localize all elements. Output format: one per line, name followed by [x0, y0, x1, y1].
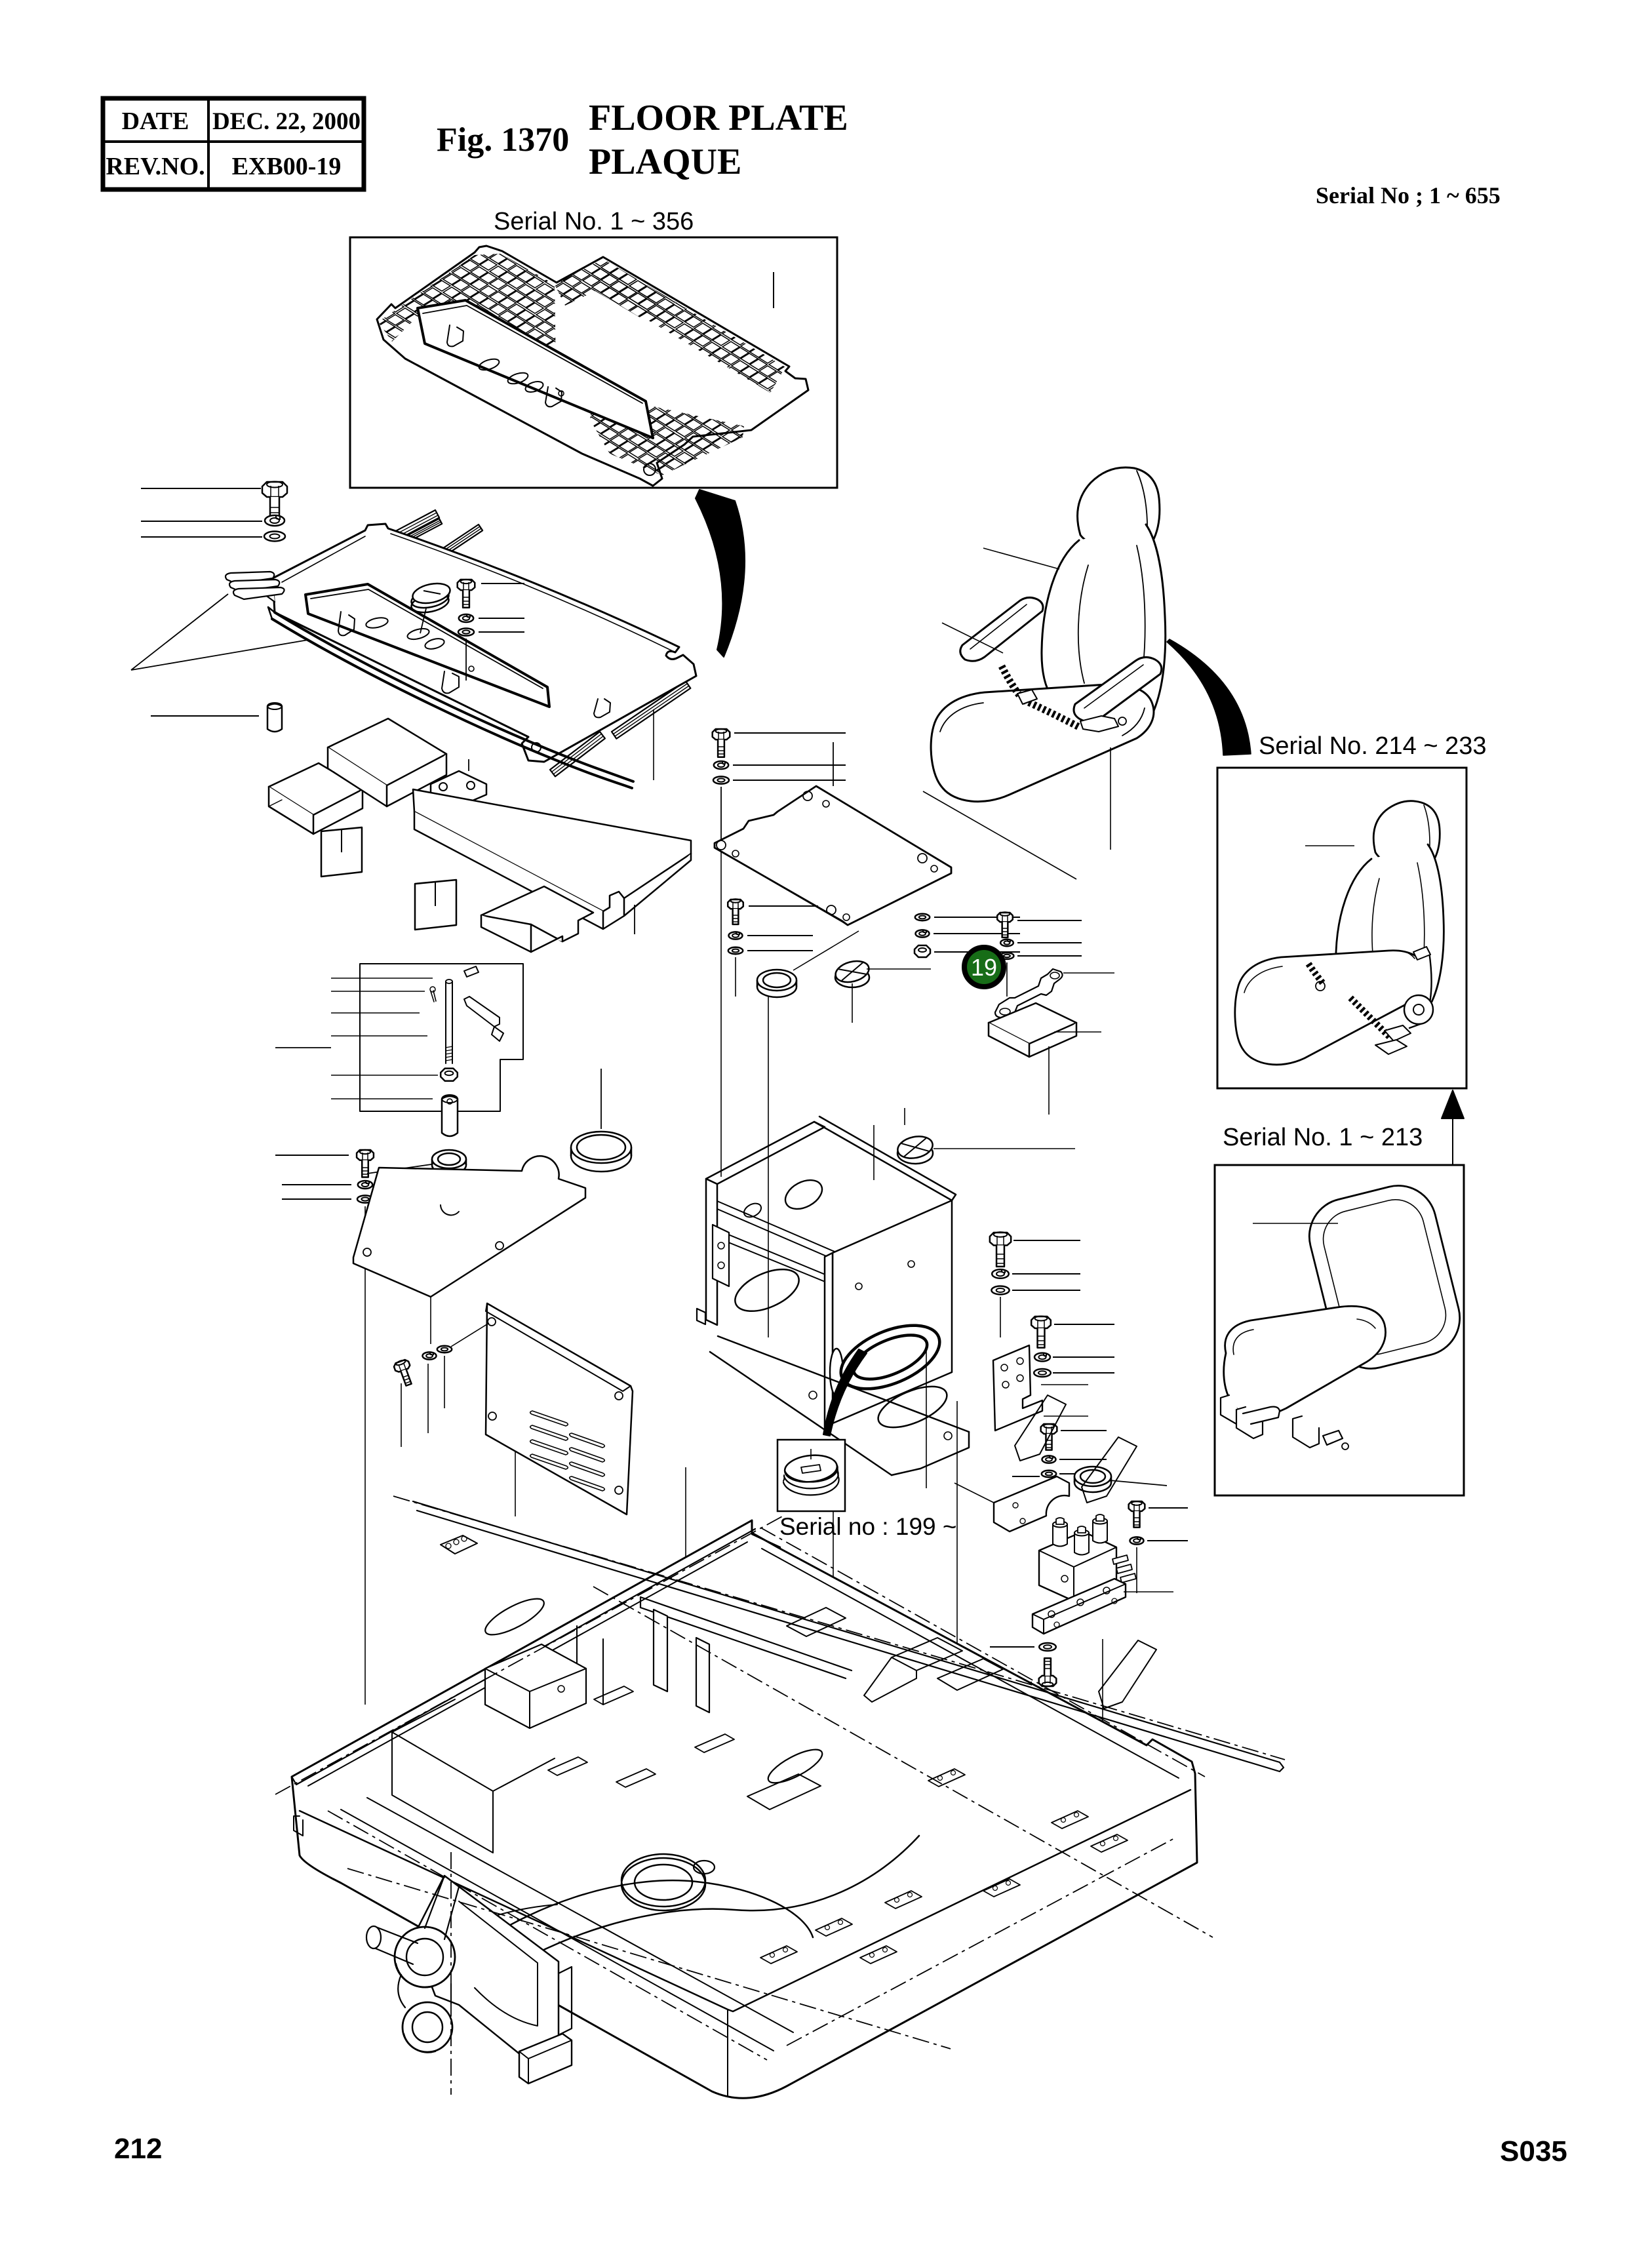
svg-text:REV.NO.: REV.NO. [106, 153, 205, 180]
svg-text:S035: S035 [1500, 2135, 1567, 2167]
svg-text:FLOOR PLATE: FLOOR PLATE [589, 98, 848, 138]
svg-text:19: 19 [971, 954, 997, 981]
svg-text:Fig. 1370: Fig. 1370 [437, 121, 569, 159]
svg-text:Serial No. 214 ~ 233: Serial No. 214 ~ 233 [1259, 732, 1487, 760]
svg-text:PLAQUE: PLAQUE [589, 142, 741, 182]
svg-text:Serial No ; 1 ~ 655: Serial No ; 1 ~ 655 [1316, 182, 1501, 208]
svg-text:EXB00-19: EXB00-19 [232, 153, 342, 180]
svg-text:DEC. 22, 2000: DEC. 22, 2000 [212, 108, 361, 135]
svg-text:DATE: DATE [122, 108, 189, 135]
svg-text:Serial No. 1 ~ 356: Serial No. 1 ~ 356 [494, 208, 694, 235]
svg-text:Serial No. 1 ~ 213: Serial No. 1 ~ 213 [1223, 1124, 1423, 1151]
svg-text:212: 212 [114, 2133, 162, 2165]
svg-text:Serial no : 199 ~: Serial no : 199 ~ [779, 1513, 957, 1540]
